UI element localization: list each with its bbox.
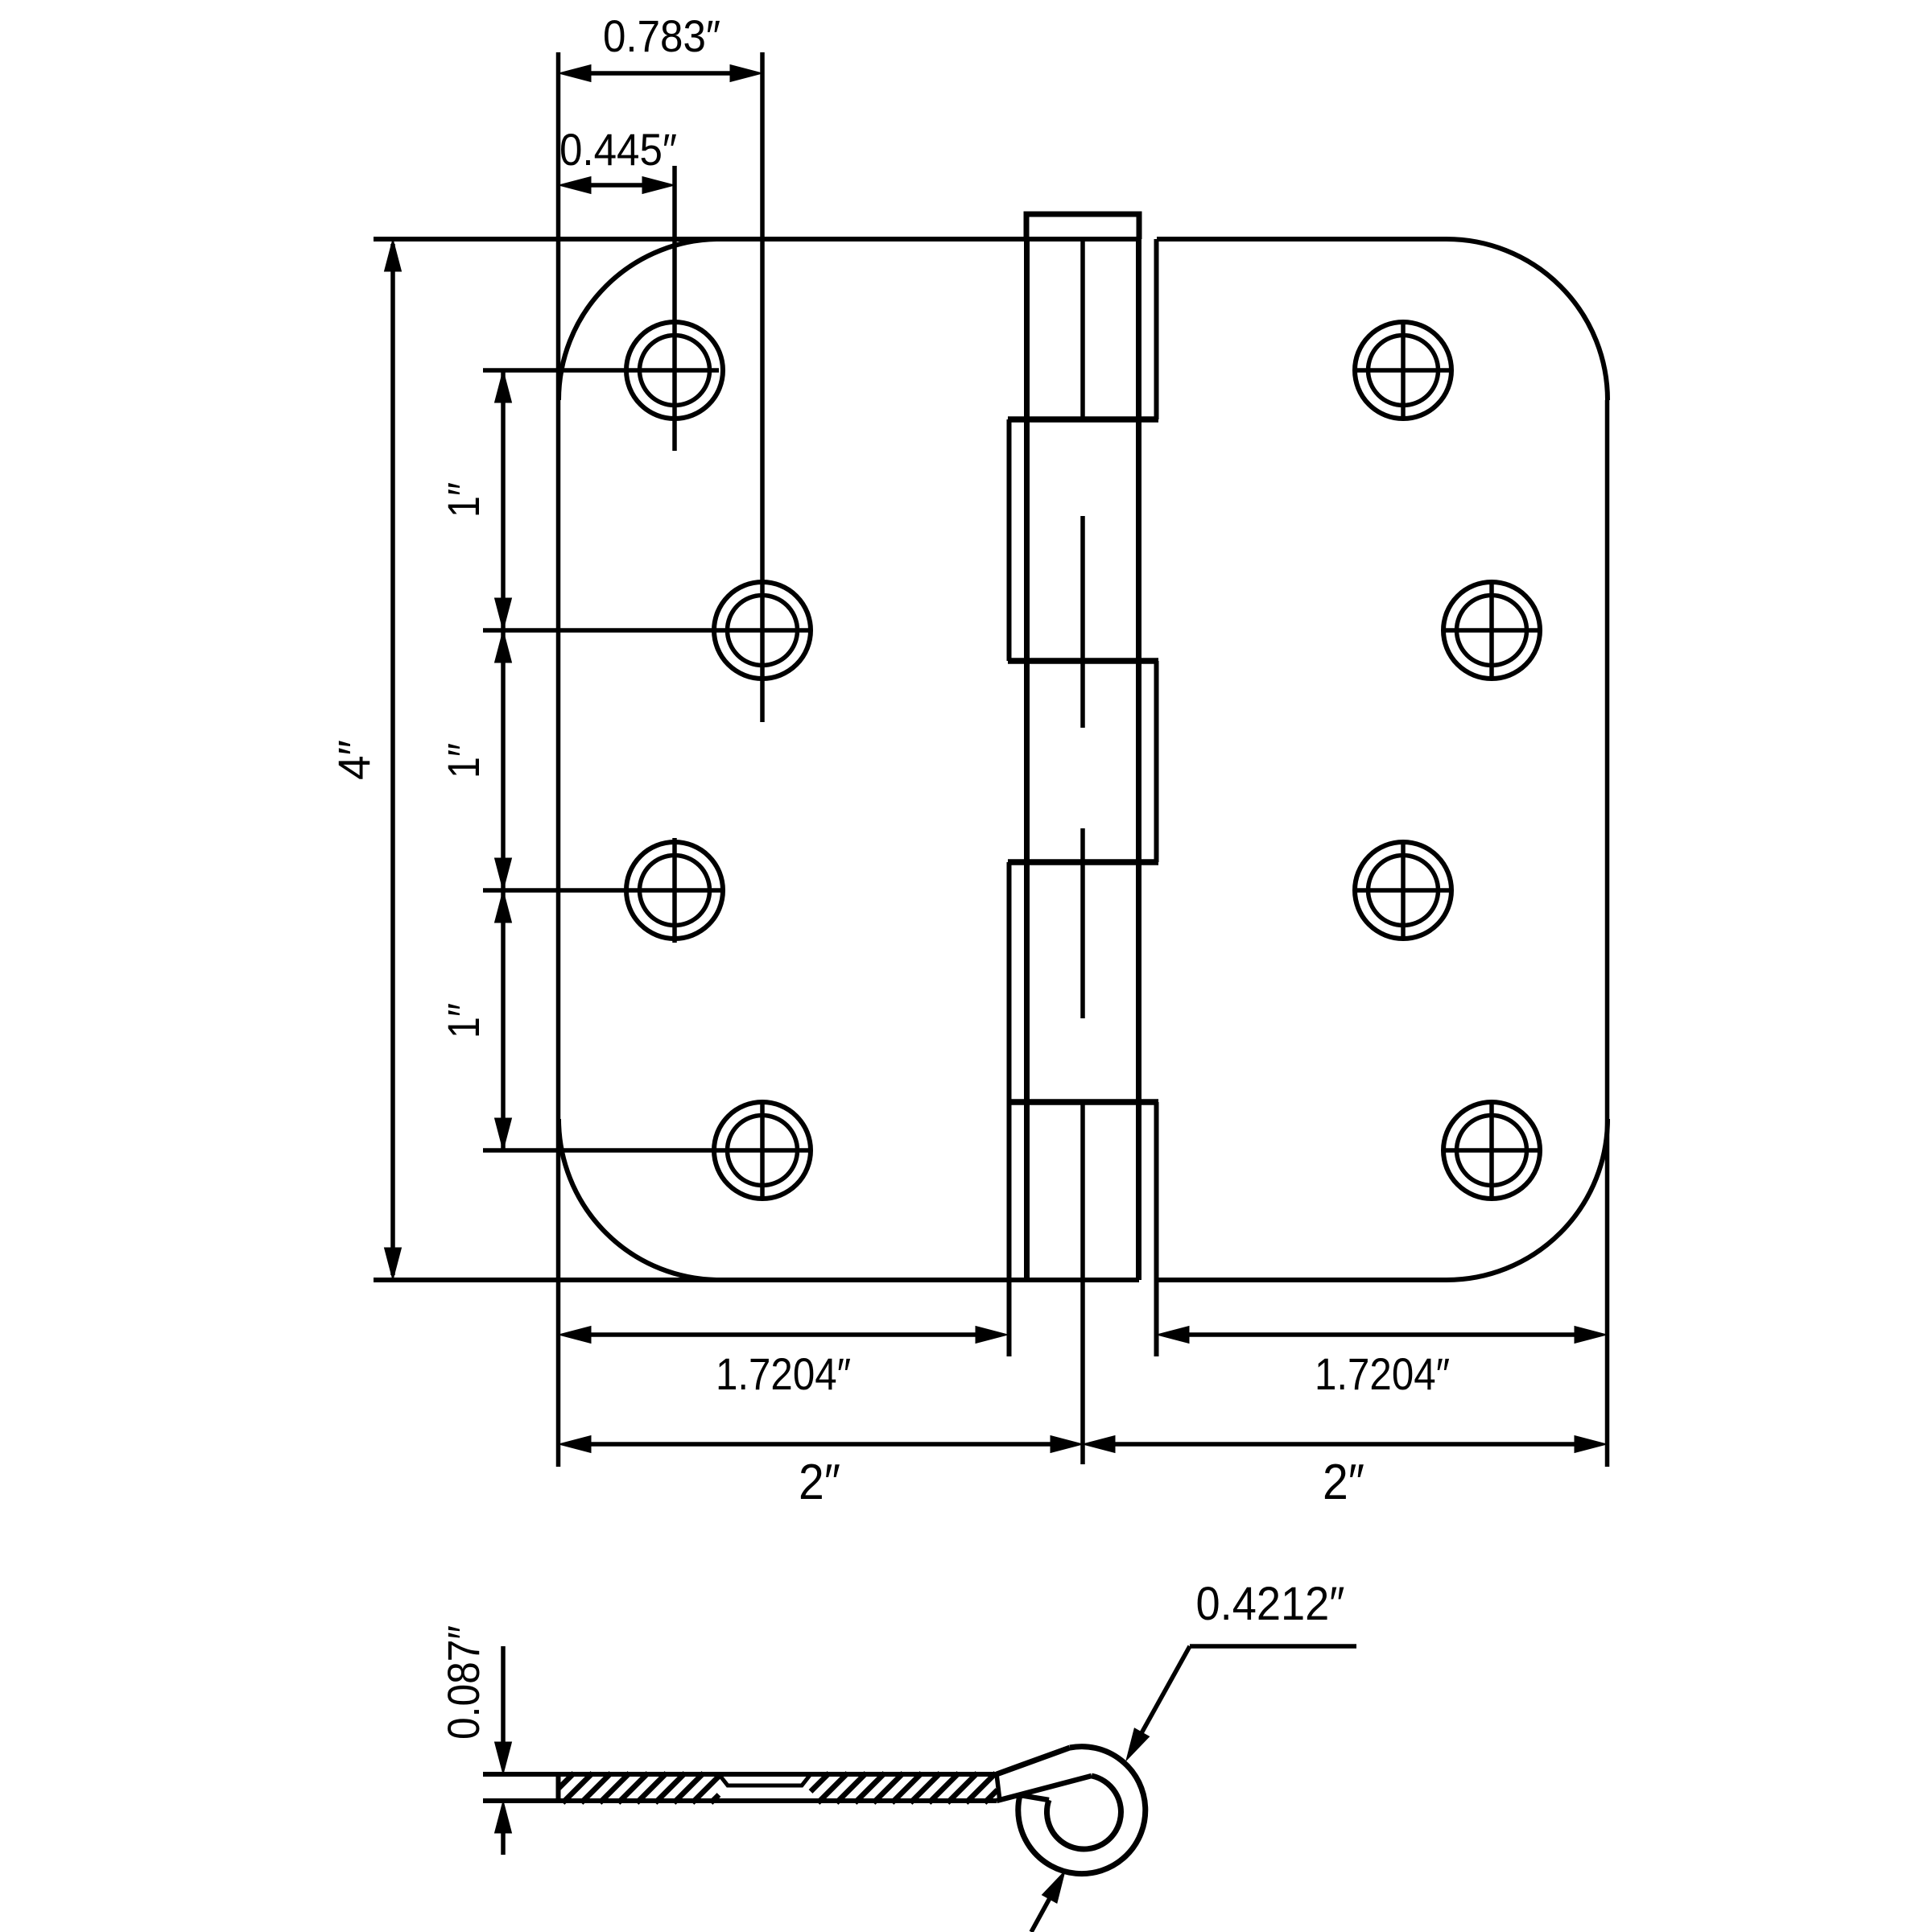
svg-text:1″: 1″ bbox=[438, 1003, 489, 1038]
svg-text:1″: 1″ bbox=[438, 482, 489, 518]
svg-text:4″: 4″ bbox=[328, 740, 379, 780]
svg-text:0.087″: 0.087″ bbox=[438, 1625, 489, 1740]
svg-text:1.7204″: 1.7204″ bbox=[1315, 1348, 1450, 1399]
svg-text:0.4212″: 0.4212″ bbox=[1196, 1578, 1345, 1630]
svg-text:2″: 2″ bbox=[799, 1455, 840, 1510]
svg-text:1″: 1″ bbox=[438, 743, 489, 778]
svg-text:0.445″: 0.445″ bbox=[559, 124, 677, 175]
svg-text:2″: 2″ bbox=[1323, 1455, 1364, 1510]
svg-text:1.7204″: 1.7204″ bbox=[716, 1348, 851, 1399]
svg-text:0.783″: 0.783″ bbox=[603, 10, 720, 61]
